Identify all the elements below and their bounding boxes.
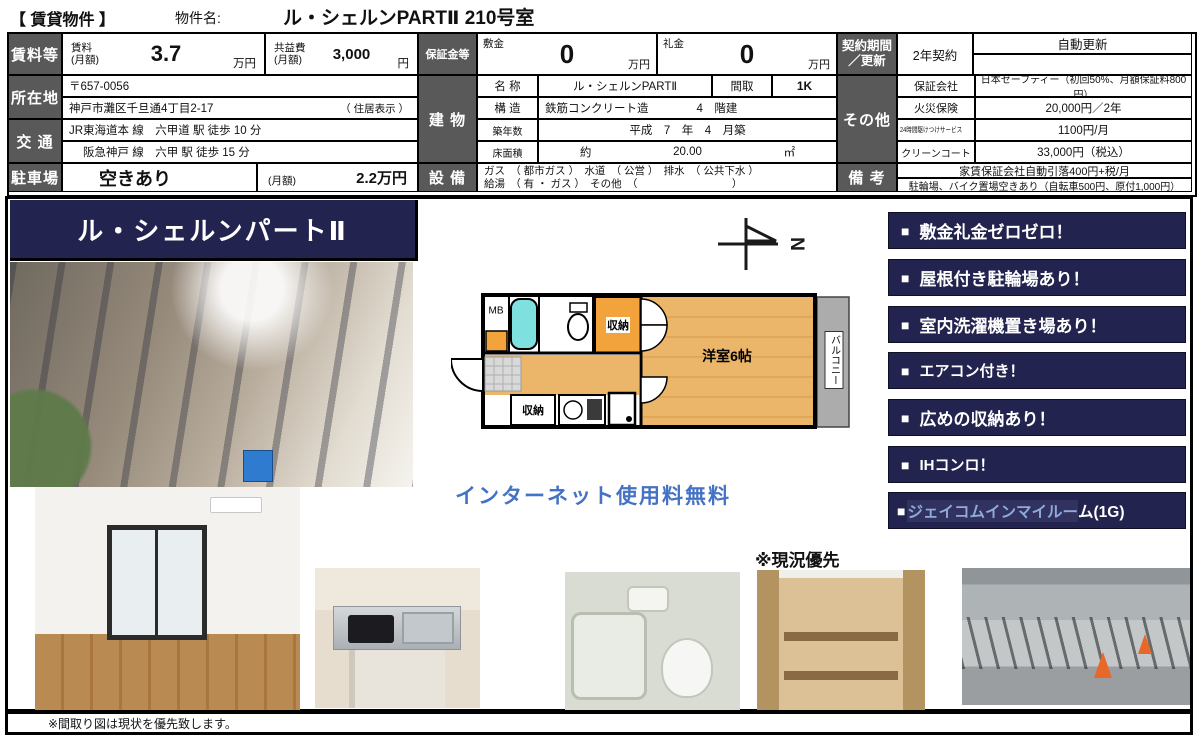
property-name-label: 物件名: [175,8,221,28]
structure-value: 鉄筋コンクリート造 [545,100,649,116]
internet-free-note: インターネット使用料無料 [455,480,731,510]
parking-status-cell: 空きあり [62,163,257,192]
bathroom-photo [565,572,740,710]
plan-label-mb: MB [489,306,504,317]
rent-value: 3.7 [151,41,182,67]
row-label-access: 交 通 [8,119,62,163]
address-cell: 神戸市灘区千旦通4丁目2-17 （ 住居表示 ） [62,97,418,119]
feature-box-large-storage: ■ 広めの収納あり！ [888,399,1186,436]
structure-label: 構 造 [477,97,538,119]
rent-unit: 万円 [233,55,256,71]
access-line2-cell: 阪急神戸 線 六甲 駅 徒歩 15 分 [62,141,418,163]
building-name-label: 名 称 [477,75,538,97]
reikin-label: 礼金 [663,36,684,51]
remarks-line2: 駐輪場、バイク置場空きあり（自転車500円、原付1,000円） [897,178,1192,192]
row-label-deposit: 保証金等 [418,33,477,75]
postal-code-cell: 〒657-0056 [62,75,418,97]
rental-property-flyer: 【 賃貸物件 】 物件名: ル・シェルンPARTⅡ 210号室 賃料等 賃料(月… [0,0,1200,739]
reikin-value: 0 [740,39,754,70]
equipment-line2: 給湯 （ 有 ・ ガス ） その他 （ ） [484,178,742,191]
bathtub [571,612,647,700]
wash-basin [627,586,669,612]
contract-term-cell: 2年契約 [897,33,973,75]
rent-cell: 賃料(月額) 3.7 万円 [62,33,265,75]
square-bullet-icon: ■ [901,317,909,333]
property-name: ル・シェルンPARTⅡ 210号室 [283,3,534,30]
layout-value: 1K [772,75,837,97]
toilet [661,638,713,698]
fee-sub: (月額) [274,54,306,66]
floors-value: 4 階建 [697,100,738,116]
row-label-equipment: 設 備 [418,163,477,192]
ih-stove [348,615,394,643]
shikikin-unit: 万円 [628,56,650,72]
closet-shelf-upper [784,632,898,641]
row-label-rent: 賃料等 [8,33,62,75]
layout-label: 間取 [712,75,772,97]
feature-box-aircon: ■ エアコン付き！ [888,352,1186,389]
parking-monthly-value: 2.2万円 [356,167,407,188]
area-about: 約 [580,144,592,160]
fee-unit: 円 [397,55,409,71]
reikin-unit: 万円 [808,56,830,72]
age-value: 平成 7 年 4 月築 [538,119,837,141]
square-bullet-icon: ■ [897,503,905,519]
area-label: 床面積 [477,141,538,163]
access-line1-cell: JR東海道本 線 六甲道 駅 徒歩 10 分 [62,119,418,141]
feature-box-indoor-laundry: ■ 室内洗濯機置き場あり！ [888,306,1186,343]
equipment-line1: ガス （ 都市ガス ） 水道 （ 公営 ） 排水 （ 公共下水 ） [484,165,759,178]
building-name-value: ル・シェルンPARTⅡ [538,75,712,97]
row-label-building: 建 物 [418,75,477,163]
feature-box-zero-deposit: ■ 敷金礼金ゼロゼロ！ [888,212,1186,249]
row-label-other: その他 [837,75,897,163]
square-bullet-icon: ■ [901,363,909,379]
jcom-highlight-text: ジェイコムインマイルー [907,500,1078,522]
wood-floor [35,634,300,710]
property-title-banner: ル・シェルンパートⅡ [10,200,418,261]
kitchen-counter [333,606,461,650]
square-bullet-icon: ■ [901,410,909,426]
closet-photo [757,570,925,710]
remarks-line1: 家賃保証会社自動引落400円+税/月 [897,163,1192,178]
air-conditioner [210,497,262,513]
reikin-cell: 礼金 0 万円 [657,33,837,75]
square-bullet-icon: ■ [901,457,909,473]
structure-value-cell: 鉄筋コンクリート造 4 階建 [538,97,837,119]
jcom-rest-text: ム(1G) [1078,500,1125,522]
fee-label: 共益費 [274,42,306,54]
plan-label-closet-top: 収納 [606,317,630,333]
plan-label-balcony: バルコニー [825,331,844,389]
window [107,525,207,640]
age-label: 築年数 [477,119,538,141]
row-label-contract: 契約期間 ／更新 [837,33,897,75]
compass-icon: N [712,212,822,274]
address-note: （ 住居表示 ） [340,101,409,116]
shikikin-label: 敷金 [483,36,504,51]
bottom-note-bar: ※間取り図は現状を優先致します。 [5,712,1193,735]
square-bullet-icon: ■ [901,270,909,286]
fee-value: 3,000 [333,46,371,63]
feature-box-covered-bicycle: ■ 屋根付き駐輪場あり！ [888,259,1186,296]
kitchen-photo [315,568,480,708]
bicycle-parking-photo [962,568,1190,705]
guarantor-value: 日本セーフティー（初回50%、月額保証料800円） [975,75,1192,97]
floor-plan [451,293,853,433]
row-label-remarks: 備 考 [837,163,897,192]
shikikin-cell: 敷金 0 万円 [477,33,657,75]
fire-insurance-label: 火災保険 [897,97,975,119]
closet-top-frame [779,570,903,578]
equipment-cell: ガス （ 都市ガス ） 水道 （ 公営 ） 排水 （ 公共下水 ） 給湯 （ 有… [477,163,837,192]
closet-shelf-lower [784,671,898,680]
contract-renewal-cell: 自動更新 [973,33,1192,54]
traffic-cone [1094,652,1112,678]
row-label-parking: 駐車場 [8,163,62,192]
kitchen-cabinet [349,650,445,708]
area-value: 20.00 [673,146,702,158]
rent-label: 賃料 [71,42,99,54]
common-fee-cell: 共益費(月額) 3,000 円 [265,33,418,75]
parking-monthly-label: (月額) [268,173,296,188]
row-label-location: 所在地 [8,75,62,119]
clean-coat-value: 33,000円（税込） [975,141,1192,163]
plan-label-closet-bottom: 収納 [522,402,544,418]
window-sash [155,530,158,635]
sink [402,612,454,644]
area-unit: ㎡ [784,144,796,160]
rent-sub: (月額) [71,54,99,66]
address-text: 神戸市灘区千旦通4丁目2-17 [69,100,213,116]
bicycles [962,617,1190,669]
traffic-cone [1138,634,1152,654]
shikikin-value: 0 [560,39,574,70]
clean-coat-label: クリーンコート [897,141,975,163]
document-type-label: 【 賃貸物件 】 [10,6,115,30]
for-rent-sign [243,450,273,482]
feature-box-jcom: ■ ジェイコムインマイルー ム(1G) [888,492,1186,529]
support-service-label: 24時間駆けつけサービス [897,119,975,141]
area-value-cell: 約 20.00 ㎡ [538,141,837,163]
plan-label-room: 洋室6帖 [702,346,752,366]
room-interior-photo [35,487,300,710]
fire-insurance-value: 20,000円／2年 [975,97,1192,119]
feature-box-ih-stove: ■ IHコンロ！ [888,446,1186,483]
parking-fee-cell: (月額) 2.2万円 [257,163,418,192]
current-condition-note: ※現況優先 [755,546,840,571]
building-exterior-photo [10,262,413,487]
square-bullet-icon: ■ [901,223,909,239]
svg-text:N: N [786,237,807,251]
support-service-value: 1100円/月 [975,119,1192,141]
guarantor-label: 保証会社 [897,75,975,97]
